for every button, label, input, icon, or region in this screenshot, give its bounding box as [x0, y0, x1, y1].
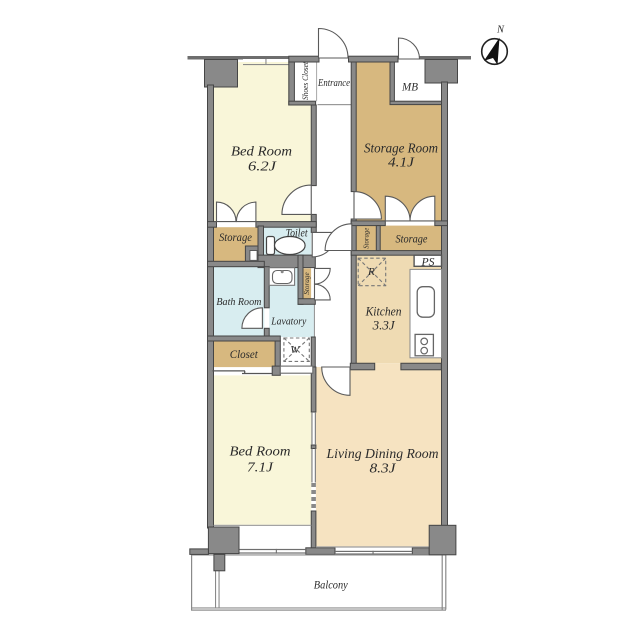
- svg-text:Storage: Storage: [303, 272, 311, 295]
- svg-text:Bed Room: Bed Room: [231, 144, 292, 159]
- svg-text:R: R: [367, 267, 376, 278]
- svg-text:Living Dining Room: Living Dining Room: [325, 446, 438, 461]
- svg-text:W: W: [290, 345, 300, 356]
- svg-text:Lavatory: Lavatory: [270, 316, 306, 328]
- svg-text:PS: PS: [421, 255, 435, 269]
- svg-text:Storage: Storage: [219, 232, 252, 244]
- svg-text:Entrance: Entrance: [317, 77, 350, 89]
- svg-text:Balcony: Balcony: [314, 578, 349, 592]
- svg-text:4.1J: 4.1J: [388, 154, 415, 169]
- svg-text:3.3J: 3.3J: [372, 319, 397, 333]
- svg-text:Kitchen: Kitchen: [365, 305, 402, 319]
- svg-text:Storage: Storage: [361, 227, 370, 249]
- svg-text:Bed Room: Bed Room: [230, 444, 291, 459]
- svg-text:N: N: [496, 25, 505, 36]
- svg-text:MB: MB: [401, 80, 419, 94]
- svg-text:Bath Room: Bath Room: [216, 296, 261, 308]
- svg-text:Closet: Closet: [230, 349, 259, 361]
- svg-text:Toilet: Toilet: [286, 227, 309, 239]
- svg-text:Shoes Closet: Shoes Closet: [300, 61, 310, 100]
- svg-text:6.2J: 6.2J: [248, 158, 277, 173]
- svg-text:8.3J: 8.3J: [370, 461, 397, 476]
- svg-text:7.1J: 7.1J: [247, 460, 274, 475]
- svg-text:Storage: Storage: [396, 234, 428, 246]
